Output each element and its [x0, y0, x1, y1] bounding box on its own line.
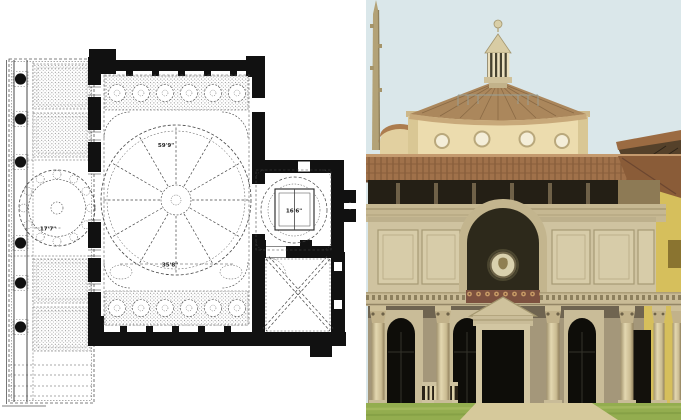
floor-plan-drawing: 17'7" — [0, 0, 365, 420]
column — [434, 306, 452, 407]
scarsella-dimension: 16'6" — [286, 209, 302, 215]
floor-plan-image[interactable]: 17'7" — [0, 0, 365, 420]
garden-path — [460, 403, 618, 420]
chapel-photo-drawing — [366, 0, 681, 420]
nave-dome-dimension: 59'9" — [158, 143, 174, 149]
porch-dome-dimension: 17'7" — [40, 227, 56, 233]
slide-canvas: 17'7" — [0, 0, 681, 420]
scarsella-doorway — [266, 247, 286, 258]
entablature — [366, 290, 681, 306]
lawn — [366, 403, 681, 420]
column — [544, 306, 562, 407]
apse-niche — [347, 203, 353, 209]
door-opening — [482, 330, 524, 407]
column — [369, 306, 387, 407]
column — [618, 306, 636, 407]
scarsella-wall-niche — [298, 162, 310, 172]
main-doorway — [470, 297, 536, 407]
nave-width-dimension: 35'8" — [162, 263, 178, 269]
chapel-photo[interactable] — [366, 0, 681, 420]
